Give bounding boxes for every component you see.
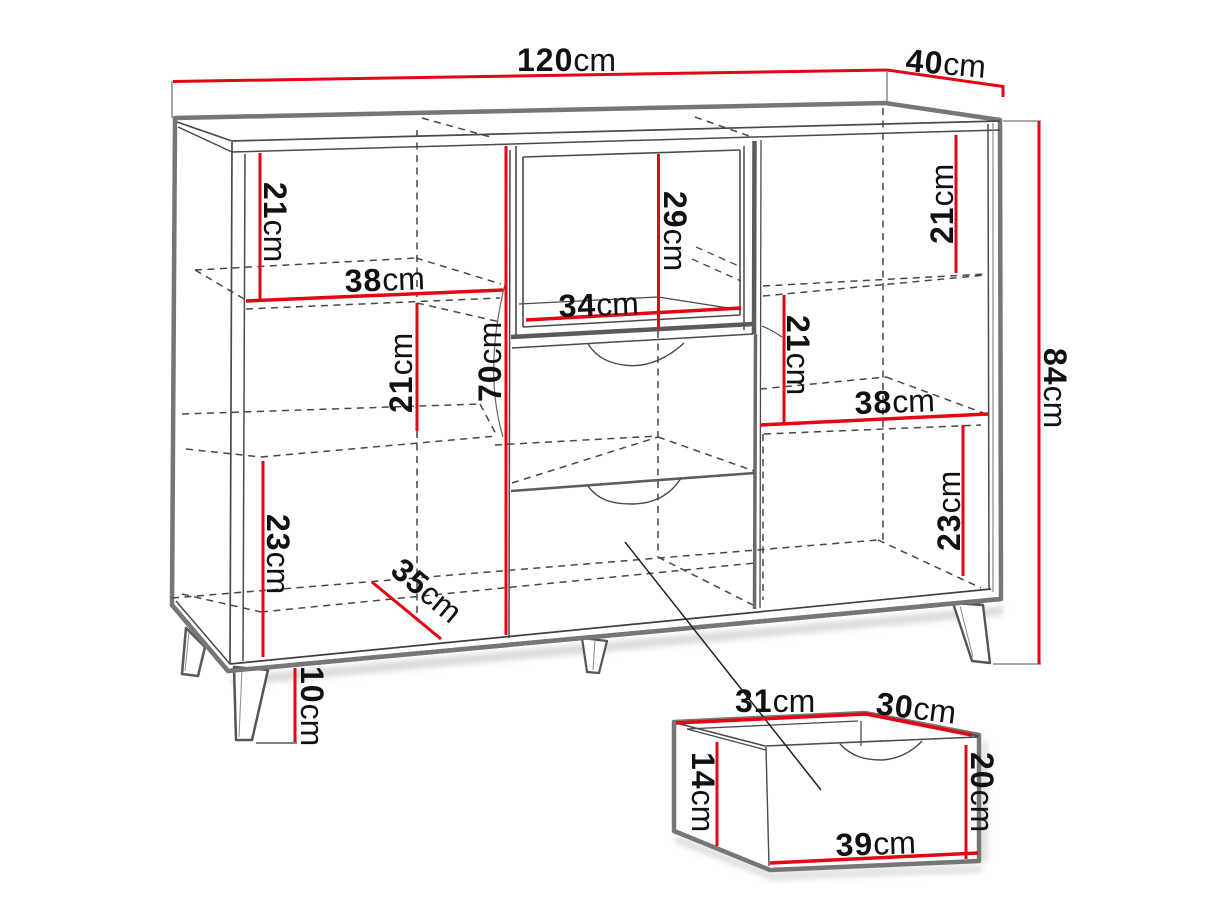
svg-text:23cm: 23cm <box>931 471 967 551</box>
svg-text:21cm: 21cm <box>257 182 293 262</box>
svg-text:31cm: 31cm <box>735 683 815 719</box>
svg-text:39cm: 39cm <box>835 824 916 863</box>
svg-text:21cm: 21cm <box>780 315 816 395</box>
svg-text:29cm: 29cm <box>657 191 693 271</box>
svg-text:120cm: 120cm <box>517 42 616 78</box>
svg-text:20cm: 20cm <box>964 752 1000 832</box>
svg-text:21cm: 21cm <box>383 333 419 413</box>
svg-text:38cm: 38cm <box>854 382 935 421</box>
svg-text:10cm: 10cm <box>294 666 330 746</box>
svg-text:34cm: 34cm <box>558 285 639 324</box>
svg-text:84cm: 84cm <box>1037 348 1073 428</box>
svg-text:21cm: 21cm <box>924 164 960 244</box>
svg-text:70cm: 70cm <box>472 322 508 402</box>
svg-text:14cm: 14cm <box>685 752 721 832</box>
svg-text:40cm: 40cm <box>904 42 987 85</box>
svg-text:38cm: 38cm <box>344 260 425 299</box>
svg-text:23cm: 23cm <box>260 514 296 594</box>
